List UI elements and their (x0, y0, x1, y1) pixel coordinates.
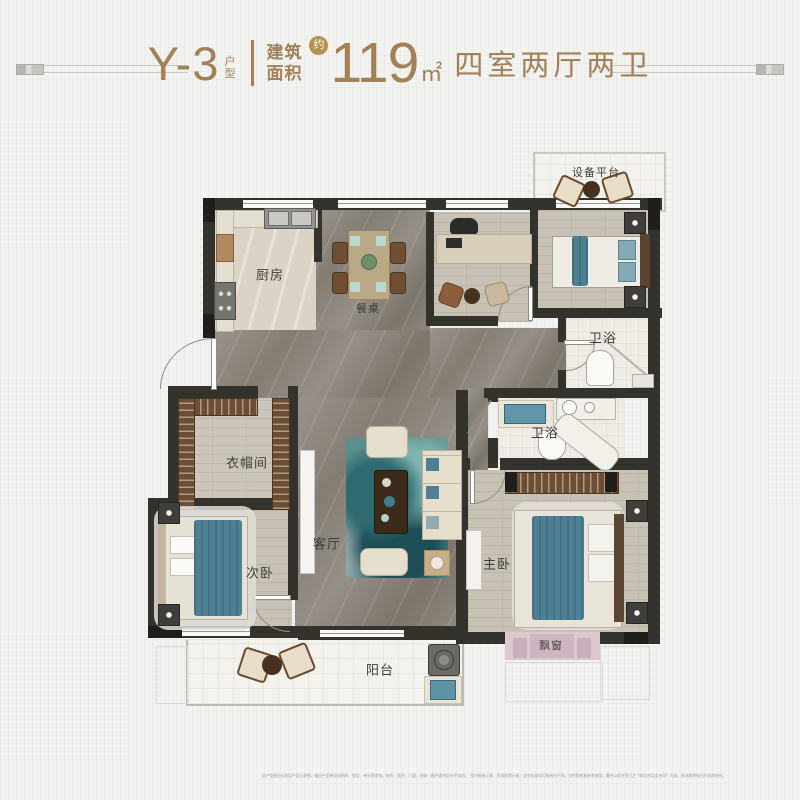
coffee-table-item (382, 478, 391, 487)
pillow (170, 558, 196, 576)
outline-ledge (156, 646, 188, 704)
kitchen-stove (214, 282, 236, 320)
bay-window-pillar (577, 638, 591, 658)
approx-badge: 约 (309, 36, 328, 55)
placemat (350, 236, 360, 246)
secondary-bed-blanket (194, 520, 242, 616)
wall (500, 458, 648, 470)
balcony-sliding-door (320, 630, 404, 637)
wardrobe (178, 398, 195, 510)
label-bay-window: 飘窗 (539, 637, 563, 653)
entry-door-arc (160, 338, 214, 389)
study-door-leaf (528, 287, 533, 321)
nightstand (624, 286, 646, 308)
master-bed-headboard (614, 514, 624, 622)
guest-bed-runner (572, 236, 588, 286)
toilet (586, 350, 614, 386)
entry-door-leaf (211, 338, 217, 390)
secondary-bedroom-door-leaf (253, 595, 291, 600)
window (446, 200, 508, 208)
label-cloakroom: 衣帽间 (226, 453, 268, 472)
kitchen-appliance (216, 234, 234, 262)
dining-chair (332, 272, 348, 294)
balcony-table (262, 655, 282, 675)
label-kitchen: 厨房 (256, 265, 284, 284)
bench (360, 548, 408, 576)
title-bar: Y-3 户型 建筑面积 约 119 ㎡ 四室两厅两卫 (0, 30, 800, 96)
master-wardrobe (505, 472, 619, 494)
dining-chair (390, 242, 406, 264)
pillow (588, 524, 616, 552)
master-bed-blanket (532, 516, 584, 620)
outline-ledge (505, 662, 603, 702)
coffee-table-item (384, 496, 395, 507)
secondary-bed-headboard (158, 516, 166, 618)
dining-chair (390, 272, 406, 294)
dresser (466, 530, 482, 590)
unit-code: Y-3 (148, 36, 220, 91)
placemat (376, 236, 386, 246)
dining-chair (332, 242, 348, 264)
label-equipment-platform: 设备平台 (572, 164, 620, 180)
window (338, 200, 426, 208)
wall (288, 508, 298, 600)
coffee-table-item (381, 514, 389, 522)
floorplan-page: Y-3 户型 建筑面积 约 119 ㎡ 四室两厅两卫 (0, 0, 800, 800)
platform-table (583, 181, 600, 198)
wall-pier (648, 198, 660, 230)
label-master-bedroom: 主卧 (483, 554, 511, 573)
nightstand (158, 502, 180, 524)
wall (426, 316, 498, 326)
wardrobe (272, 398, 290, 510)
wall (426, 212, 434, 320)
unit-type-label: 户型 (224, 56, 237, 80)
wall (484, 388, 650, 398)
area-unit: ㎡ (420, 56, 442, 88)
master-wardrobe-cap (605, 472, 617, 492)
kitchen-sink-bowl (268, 211, 289, 226)
wall (558, 318, 566, 342)
placemat (376, 282, 386, 292)
label-bathroom-lower: 卫浴 (531, 423, 559, 442)
window (243, 200, 313, 208)
pillow (618, 262, 636, 282)
bay-window-pillar (513, 638, 527, 658)
nightstand (158, 604, 180, 626)
bath-fixture (584, 402, 595, 413)
label-dining-table: 餐桌 (356, 300, 380, 316)
balcony-floor (186, 640, 464, 706)
tv-cabinet (300, 450, 315, 574)
study-chair (450, 218, 478, 234)
sofa-pillow (426, 516, 439, 529)
label-secondary-bedroom: 次卧 (246, 563, 274, 582)
washing-machine (428, 644, 460, 676)
wall (168, 386, 178, 510)
master-door-leaf (470, 470, 475, 504)
pillow (170, 536, 196, 554)
disclaimer: 此户型图为标准层户型示意图，相应户型单位因朝向、楼层、单元等差别，结构、面积、门… (0, 768, 800, 786)
kitchen-sink-bowl (291, 211, 312, 226)
area-value: 119 (330, 30, 418, 96)
table-centerpiece (361, 254, 377, 270)
sofa-pillow (426, 486, 439, 499)
outline-ledge (600, 646, 650, 700)
title-divider (251, 40, 254, 86)
study-side-table (464, 288, 480, 304)
nightstand (626, 500, 648, 522)
guest-bed-headboard (640, 234, 650, 288)
label-bathroom-upper: 卫浴 (589, 328, 617, 347)
side-table-bowl (430, 556, 444, 570)
area-prefix: 建筑面积 (266, 42, 303, 84)
wall-pier (203, 198, 215, 222)
bath-fixture (562, 400, 577, 415)
wall (530, 308, 662, 318)
master-wardrobe-cap (505, 472, 517, 492)
layout-summary: 四室两厅两卫 (454, 42, 652, 84)
pillow (588, 554, 616, 582)
nightstand (624, 212, 646, 234)
bath-shelf (632, 374, 654, 388)
balcony-sink (430, 680, 456, 700)
wash-basin (504, 404, 546, 424)
pillow (618, 240, 636, 260)
placemat (350, 282, 360, 292)
disclaimer-text: 此户型图为标准层户型示意图，相应户型单位因朝向、楼层、单元等差别，结构、面积、门… (262, 773, 726, 778)
sofa-pillow (426, 458, 439, 471)
label-living-room: 客厅 (313, 534, 341, 553)
armchair (366, 426, 408, 458)
wall (488, 438, 498, 468)
nightstand (626, 602, 648, 624)
label-balcony: 阳台 (366, 660, 394, 679)
wall-pier (624, 632, 648, 644)
study-laptop (446, 238, 462, 248)
